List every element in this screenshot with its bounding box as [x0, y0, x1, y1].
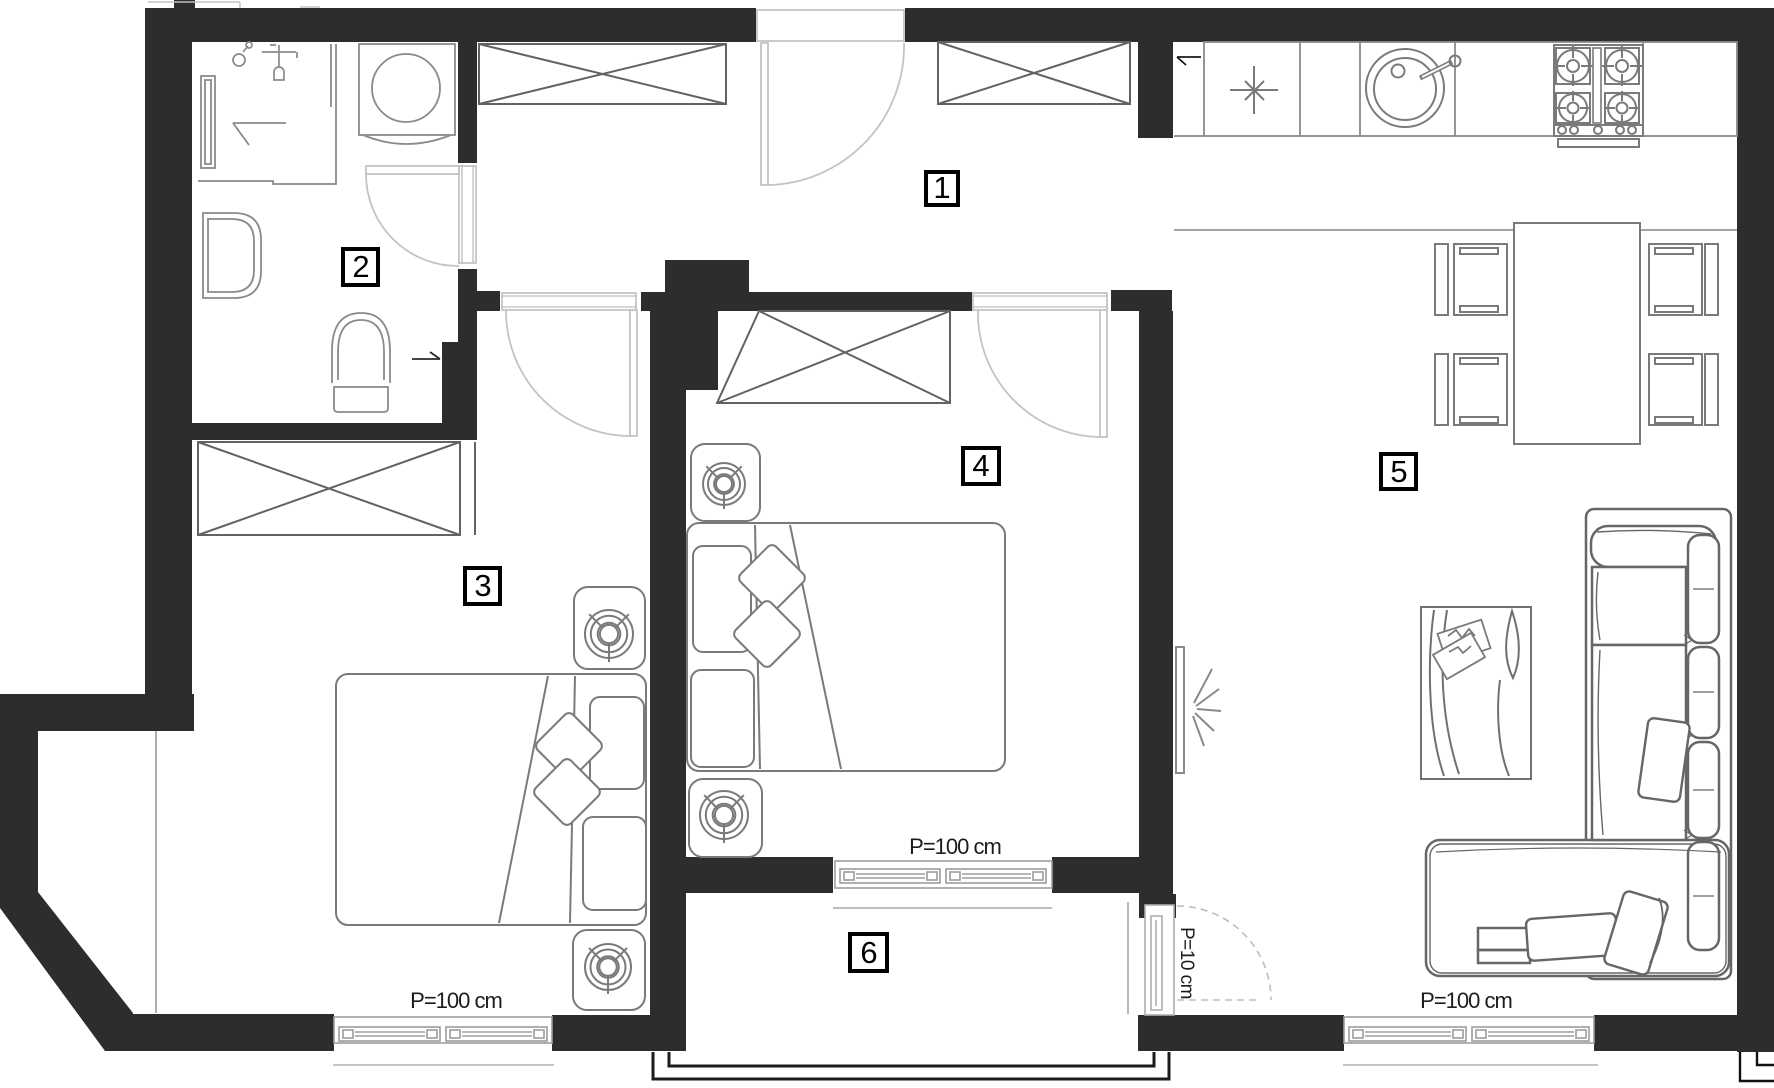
svg-text:1: 1	[933, 170, 950, 205]
svg-text:P=100 cm: P=100 cm	[909, 834, 1001, 859]
svg-text:P=100 cm: P=100 cm	[1420, 988, 1512, 1013]
svg-text:5: 5	[1390, 454, 1407, 489]
svg-text:4: 4	[972, 448, 989, 483]
svg-text:2: 2	[352, 249, 369, 284]
svg-text:P=100 cm: P=100 cm	[410, 988, 502, 1013]
svg-text:6: 6	[860, 935, 877, 970]
svg-text:3: 3	[474, 568, 491, 603]
svg-text:P=10 cm: P=10 cm	[1176, 927, 1197, 999]
